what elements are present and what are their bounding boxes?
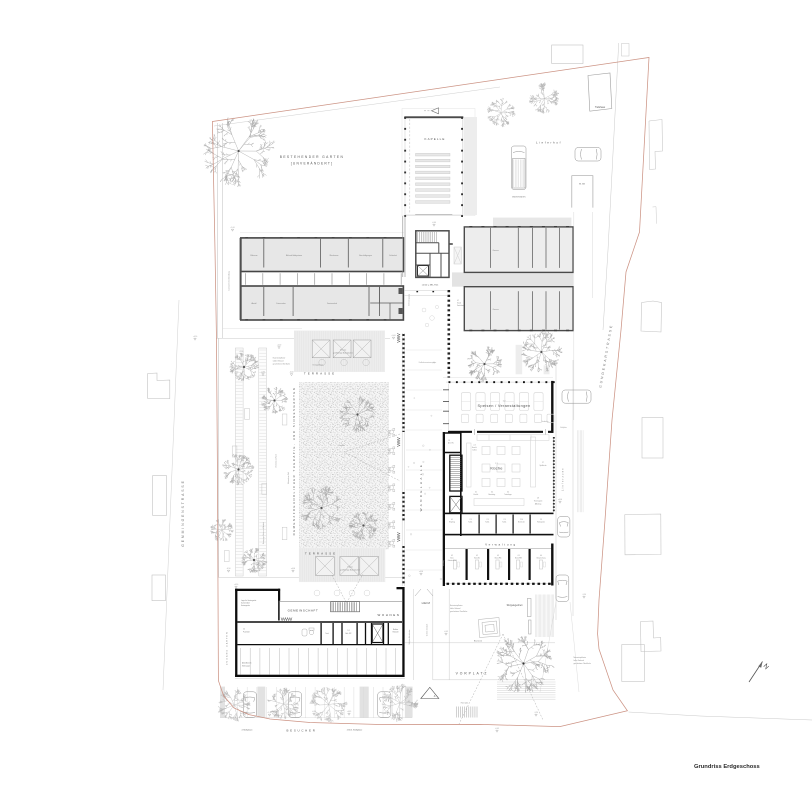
svg-text:Beh. WC: Beh. WC: [345, 633, 352, 635]
svg-text:3.4: 3.4: [507, 492, 509, 494]
svg-text:großflächige Bodenplatten: großflächige Bodenplatten: [333, 352, 353, 355]
svg-text:-0,60: -0,60: [290, 372, 294, 374]
svg-text:Kühlz.: Kühlz.: [485, 522, 490, 524]
svg-text:+0,00: +0,00: [277, 345, 281, 347]
svg-text:heller Verbund: heller Verbund: [574, 660, 584, 662]
svg-text:Kühlz.: Kühlz.: [502, 522, 507, 524]
svg-text:-0,05: -0,05: [495, 728, 499, 730]
svg-text:GEMMINGENSTRASSE: GEMMINGENSTRASSE: [181, 479, 185, 547]
svg-text:-0,35: -0,35: [255, 568, 259, 570]
svg-text:Terrasse: Terrasse: [340, 349, 347, 352]
svg-text:Seniorenclub: Seniorenclub: [327, 302, 337, 305]
svg-text:Kühlz.: Kühlz.: [468, 522, 473, 524]
svg-text:-0,35: -0,35: [261, 372, 265, 374]
svg-text:±0.00 = 391,75m: ±0.00 = 391,75m: [422, 285, 439, 287]
svg-text:3.4: 3.4: [491, 492, 493, 494]
svg-text:Treppe: Treppe: [347, 566, 352, 569]
svg-text:HEIM: HEIM: [422, 601, 431, 605]
svg-text:Lieferzone: Lieferzone: [562, 467, 565, 491]
svg-text:M. 6B: M. 6B: [579, 184, 585, 186]
svg-text:1.3: 1.3: [448, 440, 450, 442]
svg-text:Zimmer: Zimmer: [492, 308, 499, 311]
svg-text:WANDELHALLE: WANDELHALLE: [419, 463, 423, 512]
svg-text:Caffee: Caffee: [472, 450, 477, 452]
svg-text:±0,00: ±0,00: [419, 571, 423, 573]
svg-text:4.2: 4.2: [451, 555, 453, 557]
svg-text:4 Stellplätze: 4 Stellplätze: [242, 729, 254, 732]
svg-text:[UNVERÄNDERT]: [UNVERÄNDERT]: [291, 162, 333, 166]
svg-text:2 Beh. Stellplätze: 2 Beh. Stellplätze: [347, 729, 363, 732]
svg-text:4.3: 4.3: [497, 555, 499, 557]
svg-text:4.3: 4.3: [517, 555, 519, 557]
svg-text:DEMENZFREUNDLICHER THERAPIE- U: DEMENZFREUNDLICHER THERAPIE- UND SINNESG…: [292, 387, 296, 536]
svg-text:+1,00: +1,00: [239, 351, 243, 353]
svg-text:Spülküche: Spülküche: [539, 465, 546, 467]
svg-text:Wohnungen: Wohnungen: [242, 666, 250, 668]
svg-text:+0,00: +0,00: [391, 335, 395, 337]
svg-text:TERRASSE: TERRASSE: [305, 552, 337, 556]
svg-text:TERRASSE: TERRASSE: [304, 372, 336, 376]
svg-text:+0,65: +0,65: [347, 711, 351, 713]
svg-text:Verwaltung: Verwaltung: [485, 543, 517, 547]
svg-text:kontinuierliche Anbindung: kontinuierliche Anbindung: [228, 271, 231, 290]
svg-text:+0,30: +0,30: [234, 372, 238, 374]
svg-text:Lieferhof: Lieferhof: [536, 141, 562, 145]
svg-text:Mähraum: Mähraum: [250, 254, 258, 257]
svg-text:2.8: 2.8: [537, 498, 539, 500]
svg-text:Brunnen: Brunnen: [474, 640, 483, 643]
svg-text:2.10: 2.10: [520, 519, 523, 521]
svg-text:Schönheit: Schönheit: [389, 254, 397, 257]
svg-text:+0,50: +0,50: [234, 584, 238, 586]
svg-text:Kneippbecken: Kneippbecken: [313, 365, 324, 367]
svg-text:Abstell: Abstell: [251, 302, 257, 305]
svg-text:Waschraum: Waschraum: [330, 254, 340, 257]
svg-text:Kochzl.: Kochzl.: [474, 494, 480, 496]
svg-text:Speisen / Veranstaltungen: Speisen / Veranstaltungen: [478, 403, 531, 408]
svg-text:Trafohaus: Trafohaus: [595, 106, 606, 109]
svg-text:2.7: 2.7: [542, 462, 544, 464]
svg-text:-0,50: -0,50: [227, 568, 231, 570]
svg-text:Beschäftigungen: Beschäftigungen: [359, 254, 372, 257]
svg-text:4.2: 4.2: [476, 555, 478, 557]
svg-text:Tank: Tank: [325, 633, 328, 635]
svg-text:Windfang: Windfang: [443, 560, 445, 566]
svg-text:BESTEHENDER GARTEN: BESTEHENDER GARTEN: [280, 155, 345, 159]
svg-text:Bild und Hobbyräume: Bild und Hobbyräume: [286, 254, 302, 257]
svg-text:Fahrräder: Fahrräder: [461, 702, 469, 705]
svg-text:2.5: 2.5: [243, 629, 245, 631]
svg-text:ZUGANG GARTEN: ZUGANG GARTEN: [226, 631, 229, 665]
svg-text:2.3: 2.3: [503, 519, 505, 521]
svg-text:4.4: 4.4: [540, 555, 542, 557]
svg-text:Sitzgelegenheit: Sitzgelegenheit: [507, 604, 523, 607]
svg-text:±0,00: ±0,00: [291, 568, 295, 570]
svg-text:großflächige Bodenplatten: großflächige Bodenplatten: [340, 569, 360, 572]
svg-text:Küche: Küche: [490, 466, 503, 471]
svg-text:2.4: 2.4: [473, 445, 475, 447]
svg-text:heller Verbund: heller Verbund: [450, 608, 460, 610]
svg-text:1.8: 1.8: [347, 630, 349, 632]
svg-text:wilder Verband: wilder Verband: [273, 361, 284, 363]
svg-text:BESUCHER: BESUCHER: [286, 729, 316, 733]
svg-text:-0,05: -0,05: [444, 631, 448, 633]
svg-text:KAPELLE: KAPELLE: [424, 137, 445, 141]
svg-text:3.1: 3.1: [475, 492, 477, 494]
svg-text:4.1: 4.1: [451, 519, 453, 521]
svg-text:-0,60: -0,60: [432, 222, 436, 224]
svg-text:Kiosk/: Kiosk/: [457, 303, 462, 305]
svg-text:Empfang: Empfang: [449, 522, 455, 524]
svg-text:-0,90: -0,90: [312, 711, 316, 713]
svg-text:+0,50: +0,50: [193, 336, 197, 338]
svg-text:2.9: 2.9: [540, 519, 542, 521]
svg-text:Rasen: Rasen: [338, 445, 345, 447]
svg-text:Zimmer: Zimmer: [492, 249, 499, 252]
svg-text:2.3: 2.3: [469, 519, 471, 521]
svg-text:Kaffeehausatmosphäre: Kaffeehausatmosphäre: [419, 361, 436, 364]
svg-text:WOHNEN: WOHNEN: [377, 613, 400, 617]
svg-text:±0,00: ±0,00: [558, 499, 562, 501]
svg-text:Friseursalon: Friseursalon: [276, 302, 285, 305]
svg-text:-1,50: -1,50: [582, 594, 586, 596]
svg-text:+1,00: +1,00: [230, 227, 234, 229]
svg-text:Gesch./: Gesch./: [472, 447, 478, 449]
svg-text:Grundriss Erdgeschoss: Grundriss Erdgeschoss: [694, 764, 760, 770]
svg-text:4.7: 4.7: [457, 300, 459, 302]
svg-text:+1,20: +1,20: [267, 712, 271, 714]
svg-text:GEMEINSCHAFT: GEMEINSCHAFT: [288, 609, 319, 613]
svg-text:-1,20: -1,20: [534, 712, 538, 714]
svg-text:2.3: 2.3: [486, 519, 488, 521]
